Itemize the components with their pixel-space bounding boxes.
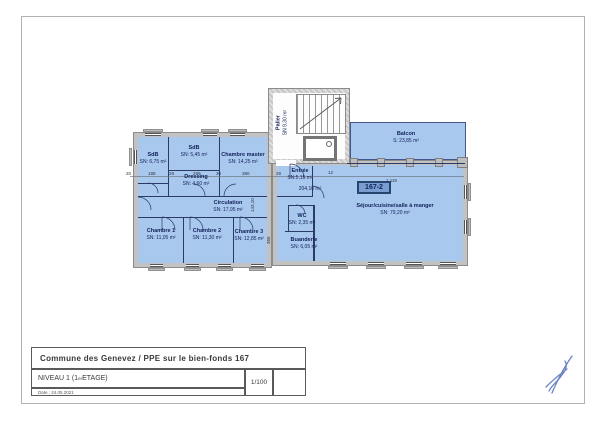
window-sill bbox=[201, 129, 219, 132]
window bbox=[368, 262, 384, 265]
window bbox=[150, 264, 163, 267]
dimension-label: 380 bbox=[242, 171, 250, 176]
room-label-sejour: Séjour/cuisine/salle à manger SN: 79,20 … bbox=[335, 203, 455, 216]
window-sill bbox=[249, 268, 266, 271]
dimension-label: 12 bbox=[328, 170, 333, 175]
interior-wall bbox=[285, 231, 314, 232]
elevator-symbol-icon bbox=[326, 141, 332, 147]
window bbox=[134, 150, 137, 164]
title-block-project-title: Commune des Genevez / PPE sur le bien-fo… bbox=[31, 347, 306, 369]
level-text: NIVEAU 1 (1 bbox=[38, 375, 78, 382]
window bbox=[330, 262, 346, 265]
room-label-sdb-1: SdB SN: 6,75 m² bbox=[139, 152, 167, 165]
window bbox=[464, 185, 467, 199]
window bbox=[440, 262, 456, 265]
window bbox=[145, 133, 161, 136]
window-sill bbox=[404, 266, 424, 269]
window-sill bbox=[184, 268, 201, 271]
staircase bbox=[296, 94, 346, 134]
dimension-label: 188 bbox=[148, 171, 156, 176]
door-opening bbox=[276, 160, 296, 166]
dimension-label: 28 bbox=[276, 171, 281, 176]
window-sill bbox=[148, 268, 165, 271]
interior-wall bbox=[138, 196, 267, 197]
window-sill bbox=[328, 266, 348, 269]
room-label-dressing: Dressing SN: 4,60 m² bbox=[174, 174, 218, 187]
unit-number-badge: 167-2 bbox=[357, 181, 391, 194]
interior-wall bbox=[138, 183, 168, 184]
title-block-compass-cell bbox=[273, 369, 306, 396]
interior-wall bbox=[183, 217, 184, 263]
window bbox=[464, 220, 467, 234]
window bbox=[218, 264, 231, 267]
level-text-rest: ETAGE) bbox=[82, 375, 108, 382]
interior-wall bbox=[138, 217, 267, 218]
interior-wall bbox=[168, 137, 169, 196]
window-sill bbox=[468, 218, 471, 236]
scanned-plan-sheet: 20 188 28 299 30 380 28 12 1 119 143,10 … bbox=[0, 0, 600, 424]
room-label-wc: WC SN: 2,35 m² bbox=[288, 213, 316, 226]
interior-wall bbox=[288, 205, 314, 206]
title-block-level: NIVEAU 1 (1er ETAGE) bbox=[31, 369, 245, 388]
room-label-palier: Palier SN 9,30 m² bbox=[275, 103, 288, 143]
total-area-label: 204,10 m² bbox=[288, 186, 332, 192]
window-sill bbox=[216, 268, 233, 271]
room-label-sdb-2: SdB SN: 5,45 m² bbox=[180, 145, 208, 158]
window bbox=[251, 264, 264, 267]
window bbox=[406, 262, 422, 265]
window-sill bbox=[129, 148, 132, 166]
window-sill bbox=[228, 129, 247, 132]
room-label-chambre-master: Chambre master SN: 14,25 m² bbox=[220, 152, 266, 165]
window bbox=[230, 133, 245, 136]
room-label-chambre-3: Chambre 3 SN: 12,85 m² bbox=[228, 229, 270, 242]
elevator bbox=[303, 136, 337, 161]
room-label-buanderie: Buanderie SN: 6,05 m² bbox=[282, 237, 326, 250]
dimension-label: 20 bbox=[126, 171, 131, 176]
window-sill bbox=[438, 266, 458, 269]
room-label-balcon: Balcon S: 23,85 m² bbox=[380, 131, 432, 144]
title-block-scale: 1/100 bbox=[245, 369, 273, 396]
interior-wall bbox=[277, 196, 313, 197]
title-block-date: Date : 24.05.2021 bbox=[31, 388, 245, 396]
window-sill bbox=[468, 183, 471, 201]
facade-wall-line bbox=[347, 163, 465, 164]
room-label-circulation: Circulation SN: 17,95 m² bbox=[203, 200, 253, 213]
window bbox=[203, 133, 217, 136]
room-label-chambre-1: Chambre 1 SN: 11,05 m² bbox=[140, 228, 182, 241]
window bbox=[186, 264, 199, 267]
room-label-entree: Entrée SN:5,15 m² bbox=[282, 168, 318, 181]
window-sill bbox=[366, 266, 386, 269]
interior-wall bbox=[219, 137, 220, 196]
room-label-chambre-2: Chambre 2 SN: 11,30 m² bbox=[186, 228, 228, 241]
window-sill bbox=[143, 129, 163, 132]
